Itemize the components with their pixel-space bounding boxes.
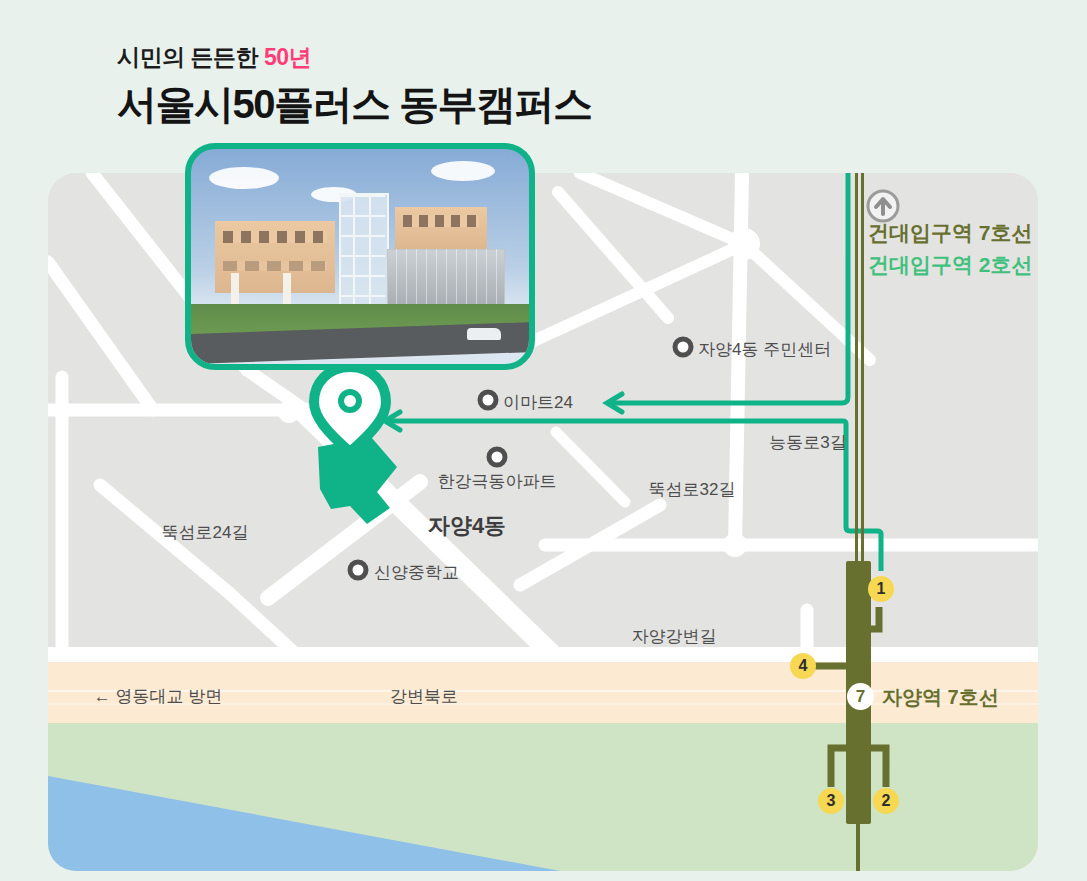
- label-district: 자양4동: [428, 511, 506, 541]
- tagline: 시민의 든든한50년: [117, 42, 592, 73]
- label-kondae-line7: 건대입구역 7호선: [868, 219, 1033, 247]
- label-yeongdong-bridge-direction: ← 영동대교 방면: [94, 685, 222, 708]
- tagline-prefix: 시민의 든든한: [117, 44, 258, 70]
- label-poi-community-center: 자양4동 주민센터: [698, 338, 831, 361]
- building-windows: [403, 215, 479, 227]
- label-road-neungdong3: 능동로3길: [769, 431, 846, 454]
- photo-car: [467, 328, 501, 340]
- label-road-ttukseom32: 뚝섬로32길: [649, 478, 736, 501]
- exit-badge-1: 1: [868, 576, 894, 602]
- label-kondae-line2: 건대입구역 2호선: [868, 251, 1033, 279]
- building-metal-ribs: [387, 249, 505, 307]
- poi-marker-school: [350, 562, 366, 578]
- cloud-shape: [431, 161, 495, 181]
- riverside-road-white: [48, 647, 1038, 662]
- building-balcony: [223, 261, 327, 271]
- up-arrow-icon: [868, 191, 898, 221]
- label-road-gangbyeon-expressway: 강변북로: [390, 685, 458, 708]
- tagline-highlight: 50년: [264, 44, 311, 70]
- poi-marker-community-center: [675, 339, 691, 355]
- building-windows: [223, 231, 327, 243]
- campus-photo: [185, 143, 535, 370]
- exit-badge-2: 2: [873, 788, 899, 814]
- building-glass-mullions: [339, 193, 385, 315]
- exit1-passage: [871, 607, 879, 629]
- page-title: 서울시50플러스 동부캠퍼스: [117, 77, 592, 132]
- building-right-wing: [395, 207, 487, 249]
- cloud-shape: [209, 167, 279, 189]
- label-road-ttukseom24: 뚝섬로24길: [162, 521, 249, 544]
- label-jayang-station: 자양역 7호선: [882, 684, 999, 711]
- poi-marker-apartment: [489, 449, 505, 465]
- exit-badge-4: 4: [790, 653, 816, 679]
- label-road-jayang-gangbyeon: 자양강변길: [632, 625, 717, 648]
- line7-badge: 7: [847, 683, 874, 710]
- label-poi-school: 신양중학교: [374, 561, 459, 584]
- page-header: 시민의 든든한50년 서울시50플러스 동부캠퍼스: [117, 42, 592, 132]
- exit-badge-3: 3: [818, 788, 844, 814]
- label-poi-apartment: 한강극동아파트: [438, 470, 557, 493]
- label-poi-emart: 이마트24: [503, 391, 573, 414]
- line7-tail: [856, 824, 860, 871]
- poi-marker-emart: [480, 392, 496, 408]
